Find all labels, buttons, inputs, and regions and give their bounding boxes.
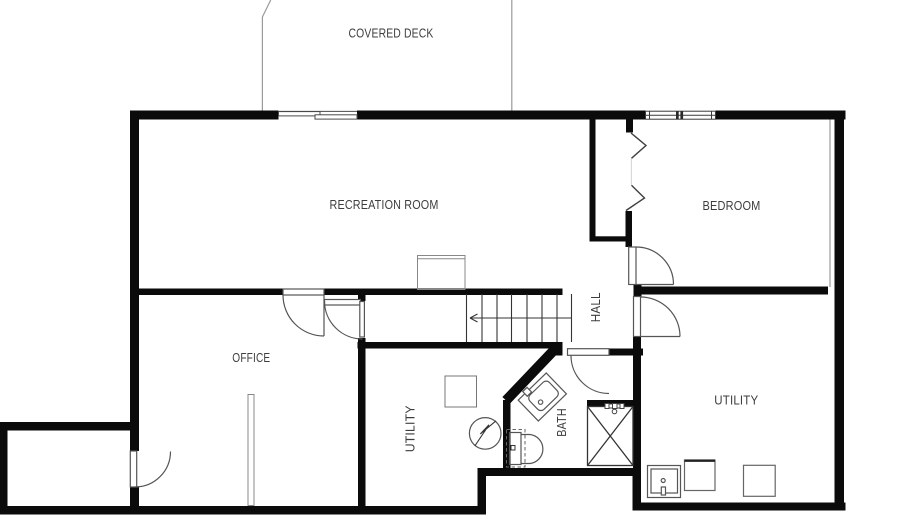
svg-text:HALL: HALL <box>588 292 603 322</box>
svg-text:RECREATION ROOM: RECREATION ROOM <box>330 197 439 212</box>
svg-text:COVERED DECK: COVERED DECK <box>349 26 434 41</box>
svg-text:OFFICE: OFFICE <box>232 350 270 365</box>
svg-text:BEDROOM: BEDROOM <box>703 198 761 213</box>
svg-text:UTILITY: UTILITY <box>402 405 417 452</box>
svg-text:UTILITY: UTILITY <box>714 393 758 408</box>
svg-text:BATH: BATH <box>554 408 569 437</box>
